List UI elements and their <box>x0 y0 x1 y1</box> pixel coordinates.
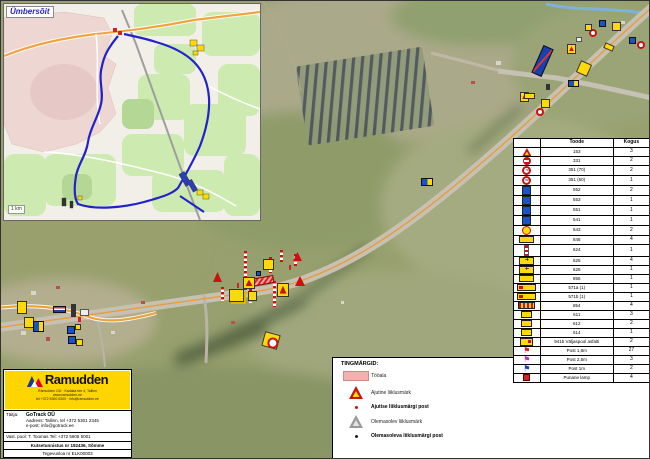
legend-count-column-header: Kogus <box>613 139 649 148</box>
legend-row: 6113 <box>514 311 650 320</box>
arrowl-sign-icon <box>519 266 534 274</box>
legend-code-cell: 571b (1) <box>540 293 613 302</box>
map-sign-yellow <box>248 291 257 301</box>
legend-code-cell: Punane lamp <box>540 374 613 383</box>
legend-row: 6122 <box>514 320 650 329</box>
legend-count-cell: 1 <box>613 176 649 186</box>
legend-icon-cell <box>514 176 541 186</box>
legend-row: 571b (1)1 <box>514 293 650 302</box>
long-sign-icon <box>517 293 536 300</box>
legend-row: Post 1,8m27 <box>514 347 650 356</box>
legend-code-cell: 541 <box>540 216 613 226</box>
legend-row: 8561 <box>514 275 650 284</box>
map-sign-yellow <box>576 60 592 77</box>
blue-sign-icon <box>522 206 531 215</box>
inset-title: Ümbersõit <box>6 6 54 18</box>
legend-row: 351 (70)2 <box>514 166 650 176</box>
symbols-legend-item: Ajutise liiklusmärgi post <box>341 404 650 410</box>
flagred-sign-icon <box>523 347 531 355</box>
traffic-management-plan-page: Ümbersõit 1 km Toode Kogus 15333312351 (… <box>0 0 650 459</box>
legend-count-cell: 1 <box>613 293 649 302</box>
legend-icon-cell <box>514 275 541 284</box>
legend-count-cell: 2 <box>613 157 649 166</box>
board-sign-icon <box>519 275 534 282</box>
map-sign-redcircle <box>536 108 544 116</box>
legend-code-cell: 941b Väljaspool asfalti <box>540 338 613 347</box>
legend-row: 8544 <box>514 302 650 311</box>
map-sign-blue <box>67 326 75 334</box>
certificate-number: Kutsetunnistus nr 192436, Sõmme <box>4 441 131 449</box>
legend-row: 8464 <box>514 236 650 245</box>
map-sign-postline <box>221 287 224 301</box>
ramudden-logo-box: Ramudden Ramudden OÜ · Kadaka tee 4, Tal… <box>5 371 130 409</box>
legend-row: Punane lamp4 <box>514 374 650 383</box>
legend-count-cell: 2 <box>613 365 649 374</box>
legend-code-cell: 153 <box>540 148 613 157</box>
arrow-sign-icon <box>519 257 534 265</box>
symbols-item-label: Olemasolev liiklusmärk <box>371 419 422 425</box>
legend-count-cell: 2 <box>613 338 649 347</box>
map-sign-yellow <box>75 324 81 330</box>
legend-row: 5531 <box>514 196 650 206</box>
legend-icon-cell <box>514 206 541 216</box>
noentry-sign-icon <box>523 157 531 165</box>
legend-count-cell: 1 <box>613 329 649 338</box>
legend-product-column-header: Toode <box>540 139 613 148</box>
sm-sign-icon <box>521 311 532 318</box>
symbols-item-label: Ajutise liiklusmärgi post <box>371 404 429 410</box>
legend-icon-cell <box>514 236 541 245</box>
map-sign-yellow <box>263 259 274 270</box>
legend-count-cell: 3 <box>613 311 649 320</box>
map-sign-dark <box>546 84 550 90</box>
legend-icon-cell <box>514 148 541 157</box>
legend-code-cell: 571a (1) <box>540 284 613 293</box>
map-sign-yellowtri <box>243 277 255 289</box>
legend-icon-cell <box>514 266 541 275</box>
map-sign-blue <box>599 20 606 27</box>
temp-sign-icon <box>349 386 363 399</box>
legend-count-cell: 4 <box>613 257 649 266</box>
ramudden-triangle-logo-icon <box>27 375 43 387</box>
symbols-item-label: Ajutine liiklusmärk <box>371 390 411 396</box>
legend-count-cell: 1 <box>613 206 649 216</box>
board-sign-icon <box>519 236 534 243</box>
company-panel: Ramudden Ramudden OÜ · Kadaka tee 4, Tal… <box>3 369 132 458</box>
map-sign-postline <box>244 251 247 277</box>
legend-code-cell: Post 2,5m <box>540 356 613 365</box>
legend-icon-cell <box>514 374 541 383</box>
map-sign-blueboard <box>531 45 553 77</box>
legend-count-cell: 3 <box>613 148 649 157</box>
flagmag-sign-icon <box>523 356 531 364</box>
sm-sign-icon <box>521 329 532 336</box>
pair-sign-icon <box>520 338 533 346</box>
legend-count-cell: 1 <box>613 196 649 206</box>
legend-count-cell: 2 <box>613 186 649 196</box>
legend-icon-cell <box>514 166 541 176</box>
map-sign-postline <box>273 281 276 307</box>
legend-icon-cell <box>514 226 541 236</box>
legend-row: 6141 <box>514 329 650 338</box>
tri-sign-icon <box>522 148 531 156</box>
legend-count-cell: 1 <box>613 284 649 293</box>
lamp-sign-icon <box>523 374 530 381</box>
executor-label: Täitja: <box>6 412 24 431</box>
legend-row: 6254 <box>514 257 650 266</box>
legend-code-cell: 643 <box>540 226 613 236</box>
legend-code-cell: 625 <box>540 257 613 266</box>
legend-code-cell: 612 <box>540 320 613 329</box>
map-sign-postline <box>280 250 283 262</box>
legend-icon-cell <box>514 311 541 320</box>
legend-code-cell: 856 <box>540 275 613 284</box>
map-sign-yellow70 <box>261 331 280 350</box>
map-sign-redtri <box>295 276 305 286</box>
sm-sign-icon <box>521 320 532 327</box>
overview-inset-map: Ümbersõit 1 km <box>3 3 261 221</box>
legend-row: Post 2,5m3 <box>514 356 650 365</box>
symbols-item-label: Tööala <box>371 373 386 379</box>
legend-count-cell: 4 <box>613 236 649 245</box>
sign-quantity-table: Toode Kogus 15333312351 (70)2351 (50)155… <box>513 138 650 383</box>
exist-sign-icon <box>349 415 363 428</box>
legend-row: 571a (1)1 <box>514 284 650 293</box>
legend-count-cell: 4 <box>613 302 649 311</box>
legend-count-cell: 1 <box>613 266 649 275</box>
yround-sign-icon <box>522 226 531 235</box>
legend-row: 3312 <box>514 157 650 166</box>
legend-icon-cell <box>514 257 541 266</box>
license-number: Tegevusloa nr ELK00003 <box>4 449 131 457</box>
map-sign-white <box>576 37 582 42</box>
legend-icon-cell <box>514 329 541 338</box>
map-sign-yellowpair <box>229 289 244 302</box>
company-name: Ramudden <box>45 372 108 387</box>
legend-icon-cell <box>514 245 541 257</box>
legend-icon-cell <box>514 284 541 293</box>
legend-code-cell: 351 (50) <box>540 176 613 186</box>
legend-code-cell: Post 1,8m <box>540 347 613 356</box>
legend-code-cell: 552 <box>540 186 613 196</box>
map-sign-arrow <box>603 42 615 52</box>
legend-row: 5522 <box>514 186 650 196</box>
long-sign-icon <box>517 284 536 291</box>
map-sign-bluepair <box>421 178 433 186</box>
symbols-legend-item: Olemasolev liiklusmärk <box>341 415 650 428</box>
legend-code-cell: 553 <box>540 196 613 206</box>
map-sign-redtri <box>213 272 222 282</box>
map-sign-bluepair <box>568 80 579 87</box>
legend-code-cell: 854 <box>540 302 613 311</box>
legend-count-cell: 2 <box>613 320 649 329</box>
map-sign-yellow <box>76 339 83 346</box>
speed70-sign-icon <box>522 166 531 175</box>
legend-count-cell: 4 <box>613 374 649 383</box>
legend-icon-cell <box>514 365 541 374</box>
legend-count-cell: 2 <box>613 166 649 176</box>
legend-code-cell: 351 (70) <box>540 166 613 176</box>
legend-icon-cell <box>514 216 541 226</box>
map-sign-yellowtri <box>567 44 576 54</box>
map-sign-yellow <box>585 24 592 31</box>
legend-icon-cell <box>514 293 541 302</box>
map-sign-bluepair <box>33 321 44 332</box>
legend-code-cell: 611 <box>540 311 613 320</box>
temp-post-icon <box>355 406 358 409</box>
legend-row: 6261 <box>514 266 650 275</box>
legend-code-cell: 551 <box>540 206 613 216</box>
inset-scale-label: 1 km <box>8 205 25 214</box>
legend-row: 351 (50)1 <box>514 176 650 186</box>
legend-count-cell: 1 <box>613 245 649 257</box>
post-sign-icon <box>524 245 529 256</box>
company-address-line3: tel +372 5300 0000 · info@ramudden.ee <box>5 397 130 401</box>
workarea-icon <box>343 371 369 381</box>
legend-code-cell: 626 <box>540 266 613 275</box>
map-sign-blue <box>68 336 76 344</box>
legend-row: 1533 <box>514 148 650 157</box>
legend-row: 6241 <box>514 245 650 257</box>
map-sign-blue <box>629 37 636 44</box>
legend-code-cell: 624 <box>540 245 613 257</box>
legend-code-cell: 614 <box>540 329 613 338</box>
map-sign-yellow <box>17 301 27 314</box>
legend-icon-cell <box>514 186 541 196</box>
inset-map-graphic <box>4 4 260 220</box>
blue-sign-icon <box>522 216 531 225</box>
map-sign-redcircle <box>637 41 645 49</box>
map-sign-yellow <box>541 99 550 108</box>
legend-code-cell: 331 <box>540 157 613 166</box>
flagblue-sign-icon <box>523 365 531 373</box>
legend-icon-cell <box>514 302 541 311</box>
map-sign-flag <box>289 265 291 270</box>
map-sign-yellowtri <box>277 283 289 297</box>
map-sign-white <box>80 309 89 316</box>
legend-count-cell: 2 <box>613 226 649 236</box>
map-sign-yellow <box>612 22 621 31</box>
symbols-legend-item: Olemasoleva liiklusmärgi post <box>341 433 650 439</box>
map-sign-blue <box>256 271 261 276</box>
legend-row: 5511 <box>514 206 650 216</box>
exist-post-icon <box>355 435 358 438</box>
legend-icon-cell <box>514 196 541 206</box>
legend-icon-column-header <box>514 139 541 148</box>
legend-count-cell: 3 <box>613 356 649 365</box>
legend-code-cell: Post 1m <box>540 365 613 374</box>
legend-count-cell: 27 <box>613 347 649 356</box>
legend-count-cell: 1 <box>613 275 649 284</box>
responsible-person: Vast. pool: T. Toomas Tel: +372 5605 500… <box>4 432 131 440</box>
legend-icon-cell <box>514 157 541 166</box>
legend-row: 941b Väljaspool asfalti2 <box>514 338 650 347</box>
legend-icon-cell <box>514 320 541 329</box>
map-sign-flag <box>78 317 81 322</box>
blue-sign-icon <box>522 196 531 205</box>
legend-row: 5411 <box>514 216 650 226</box>
legend-row: Post 1m2 <box>514 365 650 374</box>
legend-row: 6432 <box>514 226 650 236</box>
map-sign-flag <box>237 283 239 288</box>
legend-count-cell: 1 <box>613 216 649 226</box>
legend-code-cell: 846 <box>540 236 613 245</box>
map-sign-arrow <box>524 93 535 99</box>
barrier-sign-icon <box>518 302 535 309</box>
map-sign-dark <box>71 304 76 317</box>
symbols-item-label: Olemasoleva liiklusmärgi post <box>371 433 443 439</box>
map-sign-blueboard2 <box>53 306 66 313</box>
speed50-sign-icon <box>522 176 531 185</box>
executor-email: e-post: info@gotrack.ee <box>26 423 99 428</box>
executor-name: GoTrack OÜ <box>26 412 55 418</box>
symbols-legend-item: Ajutine liiklusmärk <box>341 386 650 399</box>
blue-sign-icon <box>522 186 531 195</box>
